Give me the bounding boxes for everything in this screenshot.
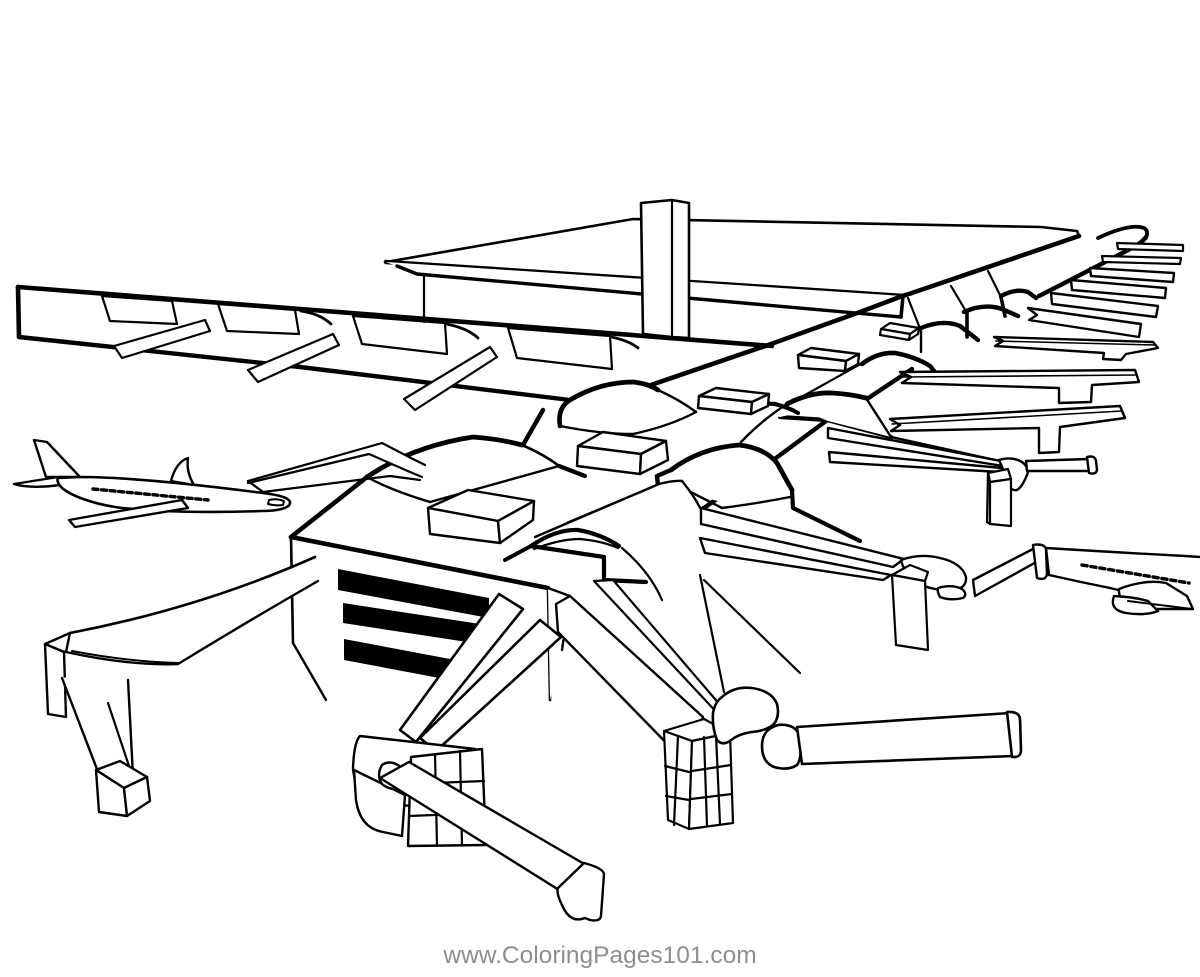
svg-text:www.ColoringPages101.com: www.ColoringPages101.com [442,942,756,969]
